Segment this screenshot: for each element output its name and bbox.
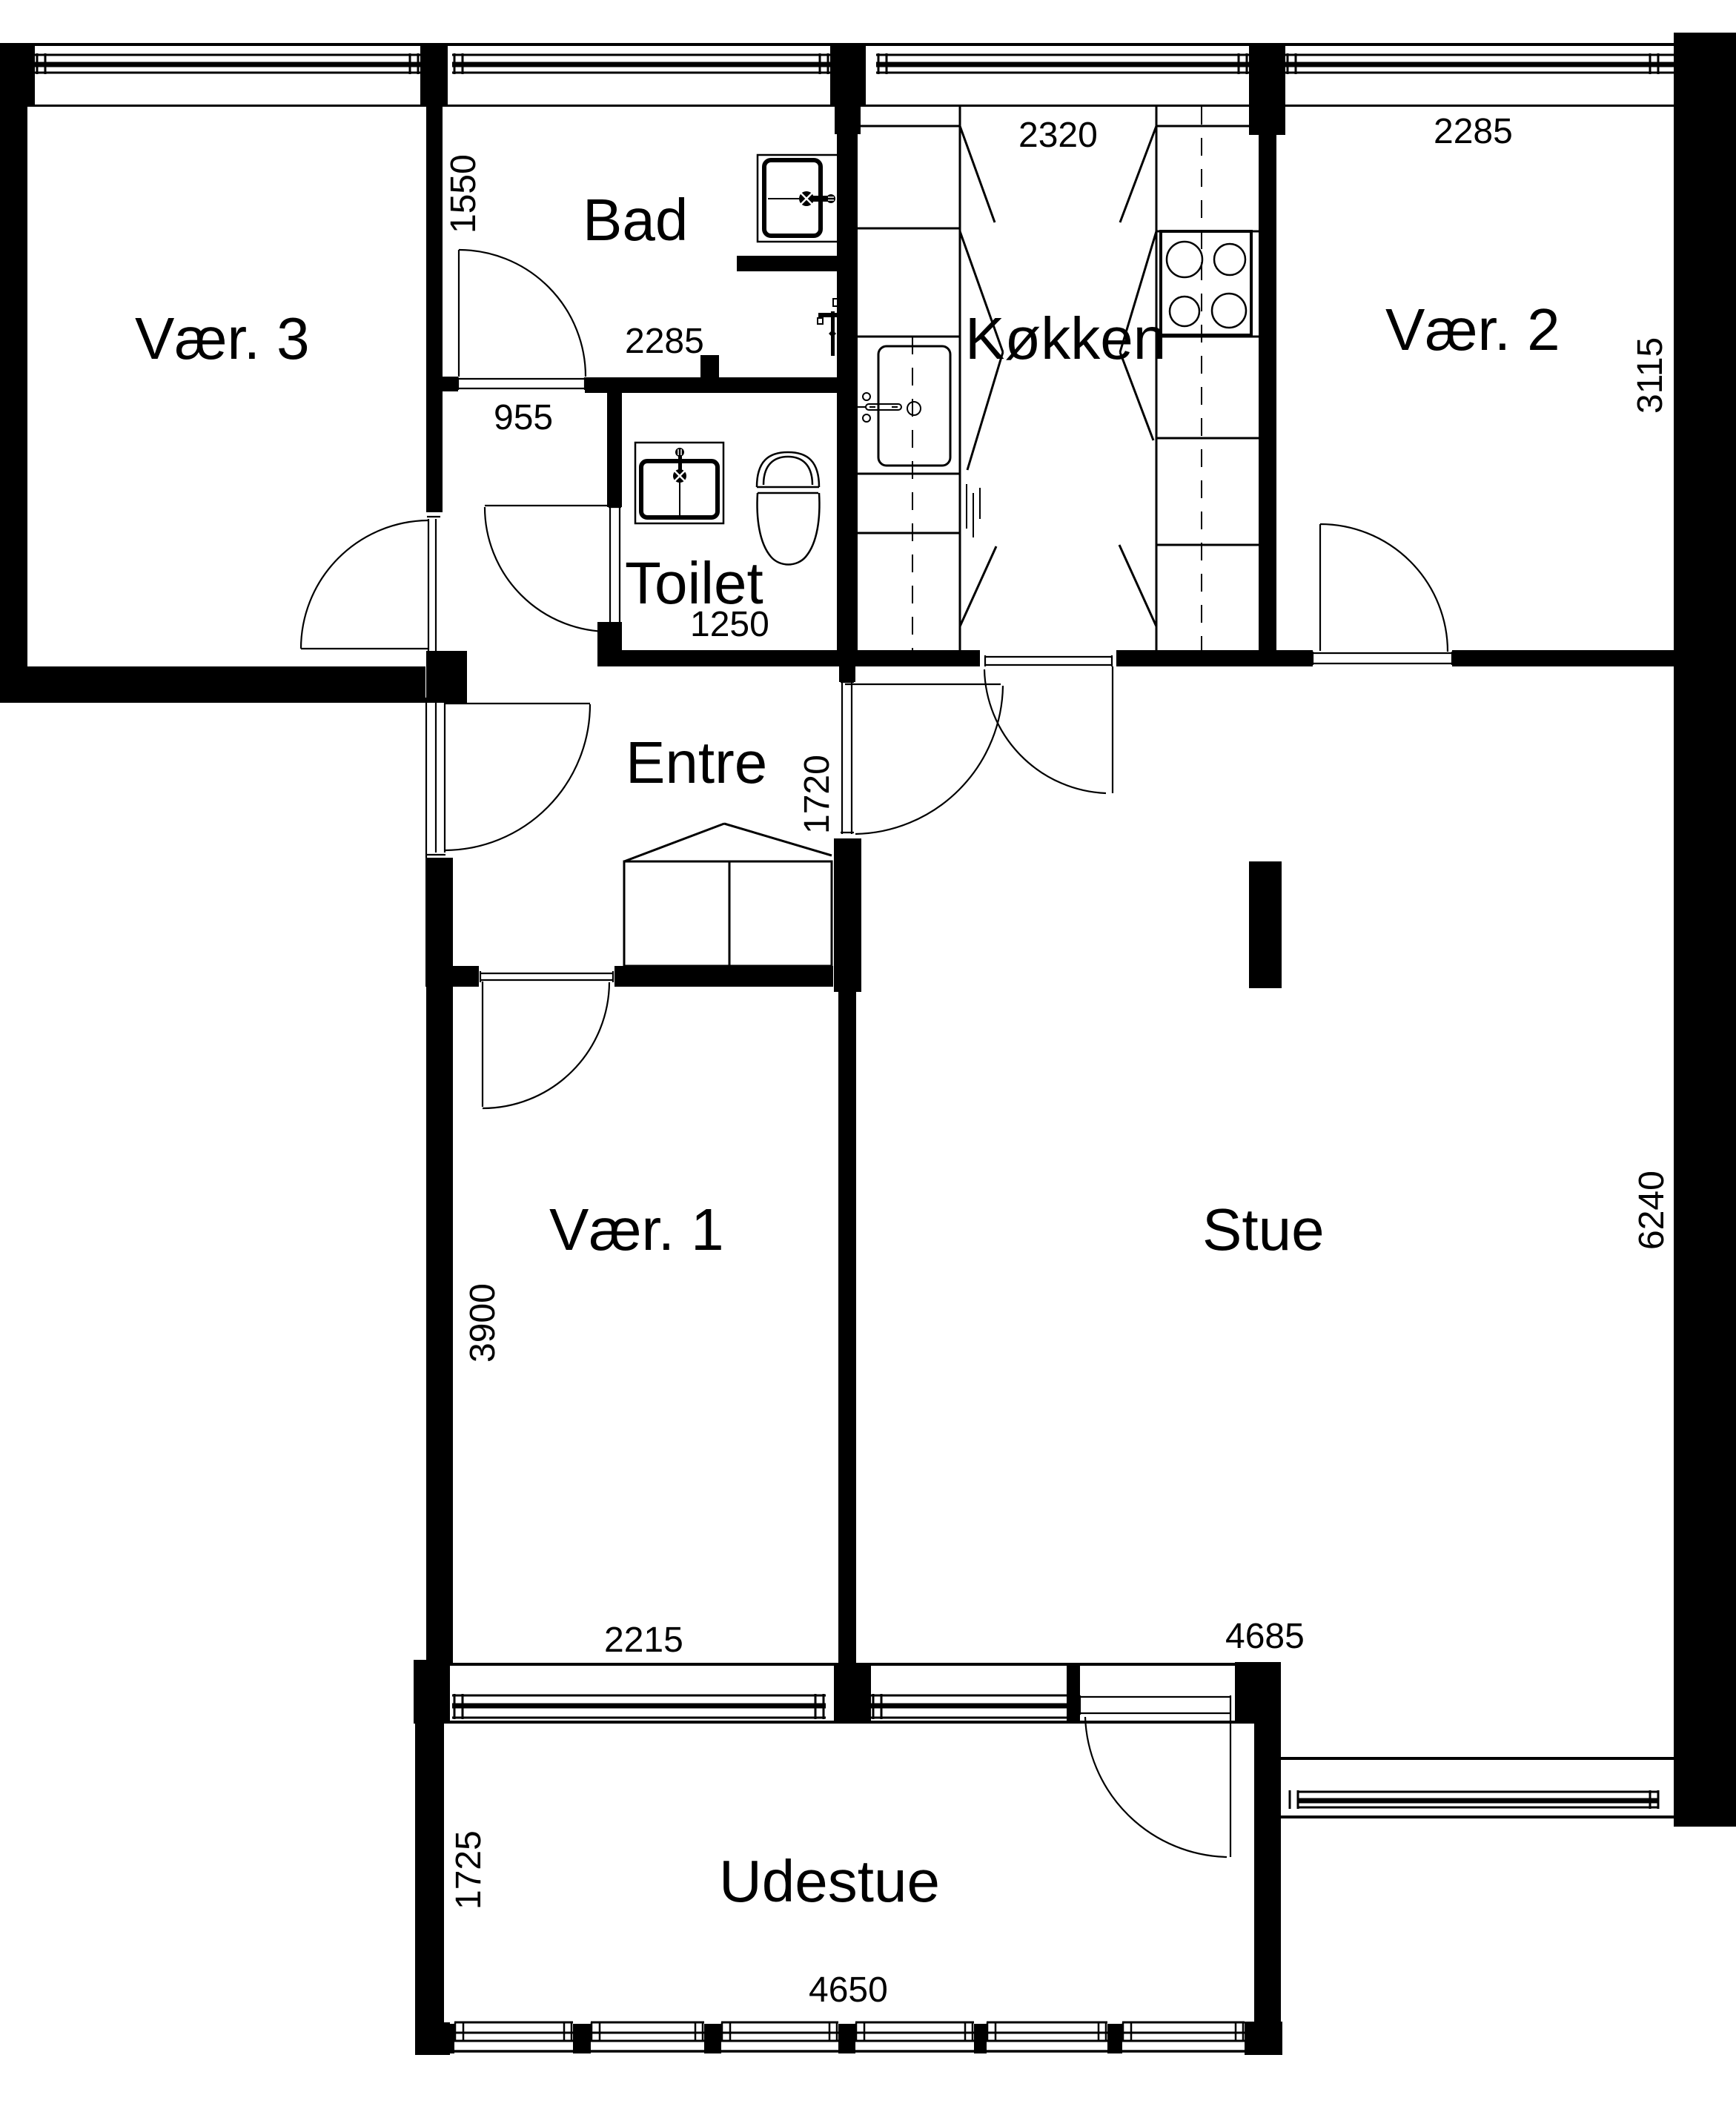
svg-text:Vær. 3: Vær. 3 [135, 305, 310, 371]
svg-text:Vær. 2: Vær. 2 [1385, 297, 1560, 363]
svg-text:955: 955 [494, 398, 553, 437]
svg-text:Køkken: Køkken [965, 305, 1166, 371]
svg-text:2320: 2320 [1018, 116, 1098, 155]
svg-text:2215: 2215 [604, 1621, 683, 1660]
svg-text:1550: 1550 [444, 154, 483, 234]
svg-text:Entre: Entre [626, 729, 767, 795]
svg-text:Stue: Stue [1202, 1196, 1325, 1262]
svg-text:1725: 1725 [449, 1830, 488, 1910]
svg-text:1250: 1250 [690, 605, 769, 644]
svg-text:Udestue: Udestue [719, 1848, 940, 1914]
svg-text:1720: 1720 [798, 755, 837, 834]
svg-text:6240: 6240 [1632, 1171, 1672, 1250]
svg-text:3900: 3900 [463, 1283, 503, 1363]
svg-text:4685: 4685 [1225, 1617, 1305, 1656]
svg-text:Vær. 1: Vær. 1 [549, 1196, 724, 1262]
svg-text:Bad: Bad [583, 187, 688, 253]
svg-text:4650: 4650 [809, 1970, 888, 2010]
svg-text:2285: 2285 [625, 322, 704, 361]
svg-text:2285: 2285 [1434, 112, 1513, 151]
svg-text:3115: 3115 [1631, 337, 1670, 414]
